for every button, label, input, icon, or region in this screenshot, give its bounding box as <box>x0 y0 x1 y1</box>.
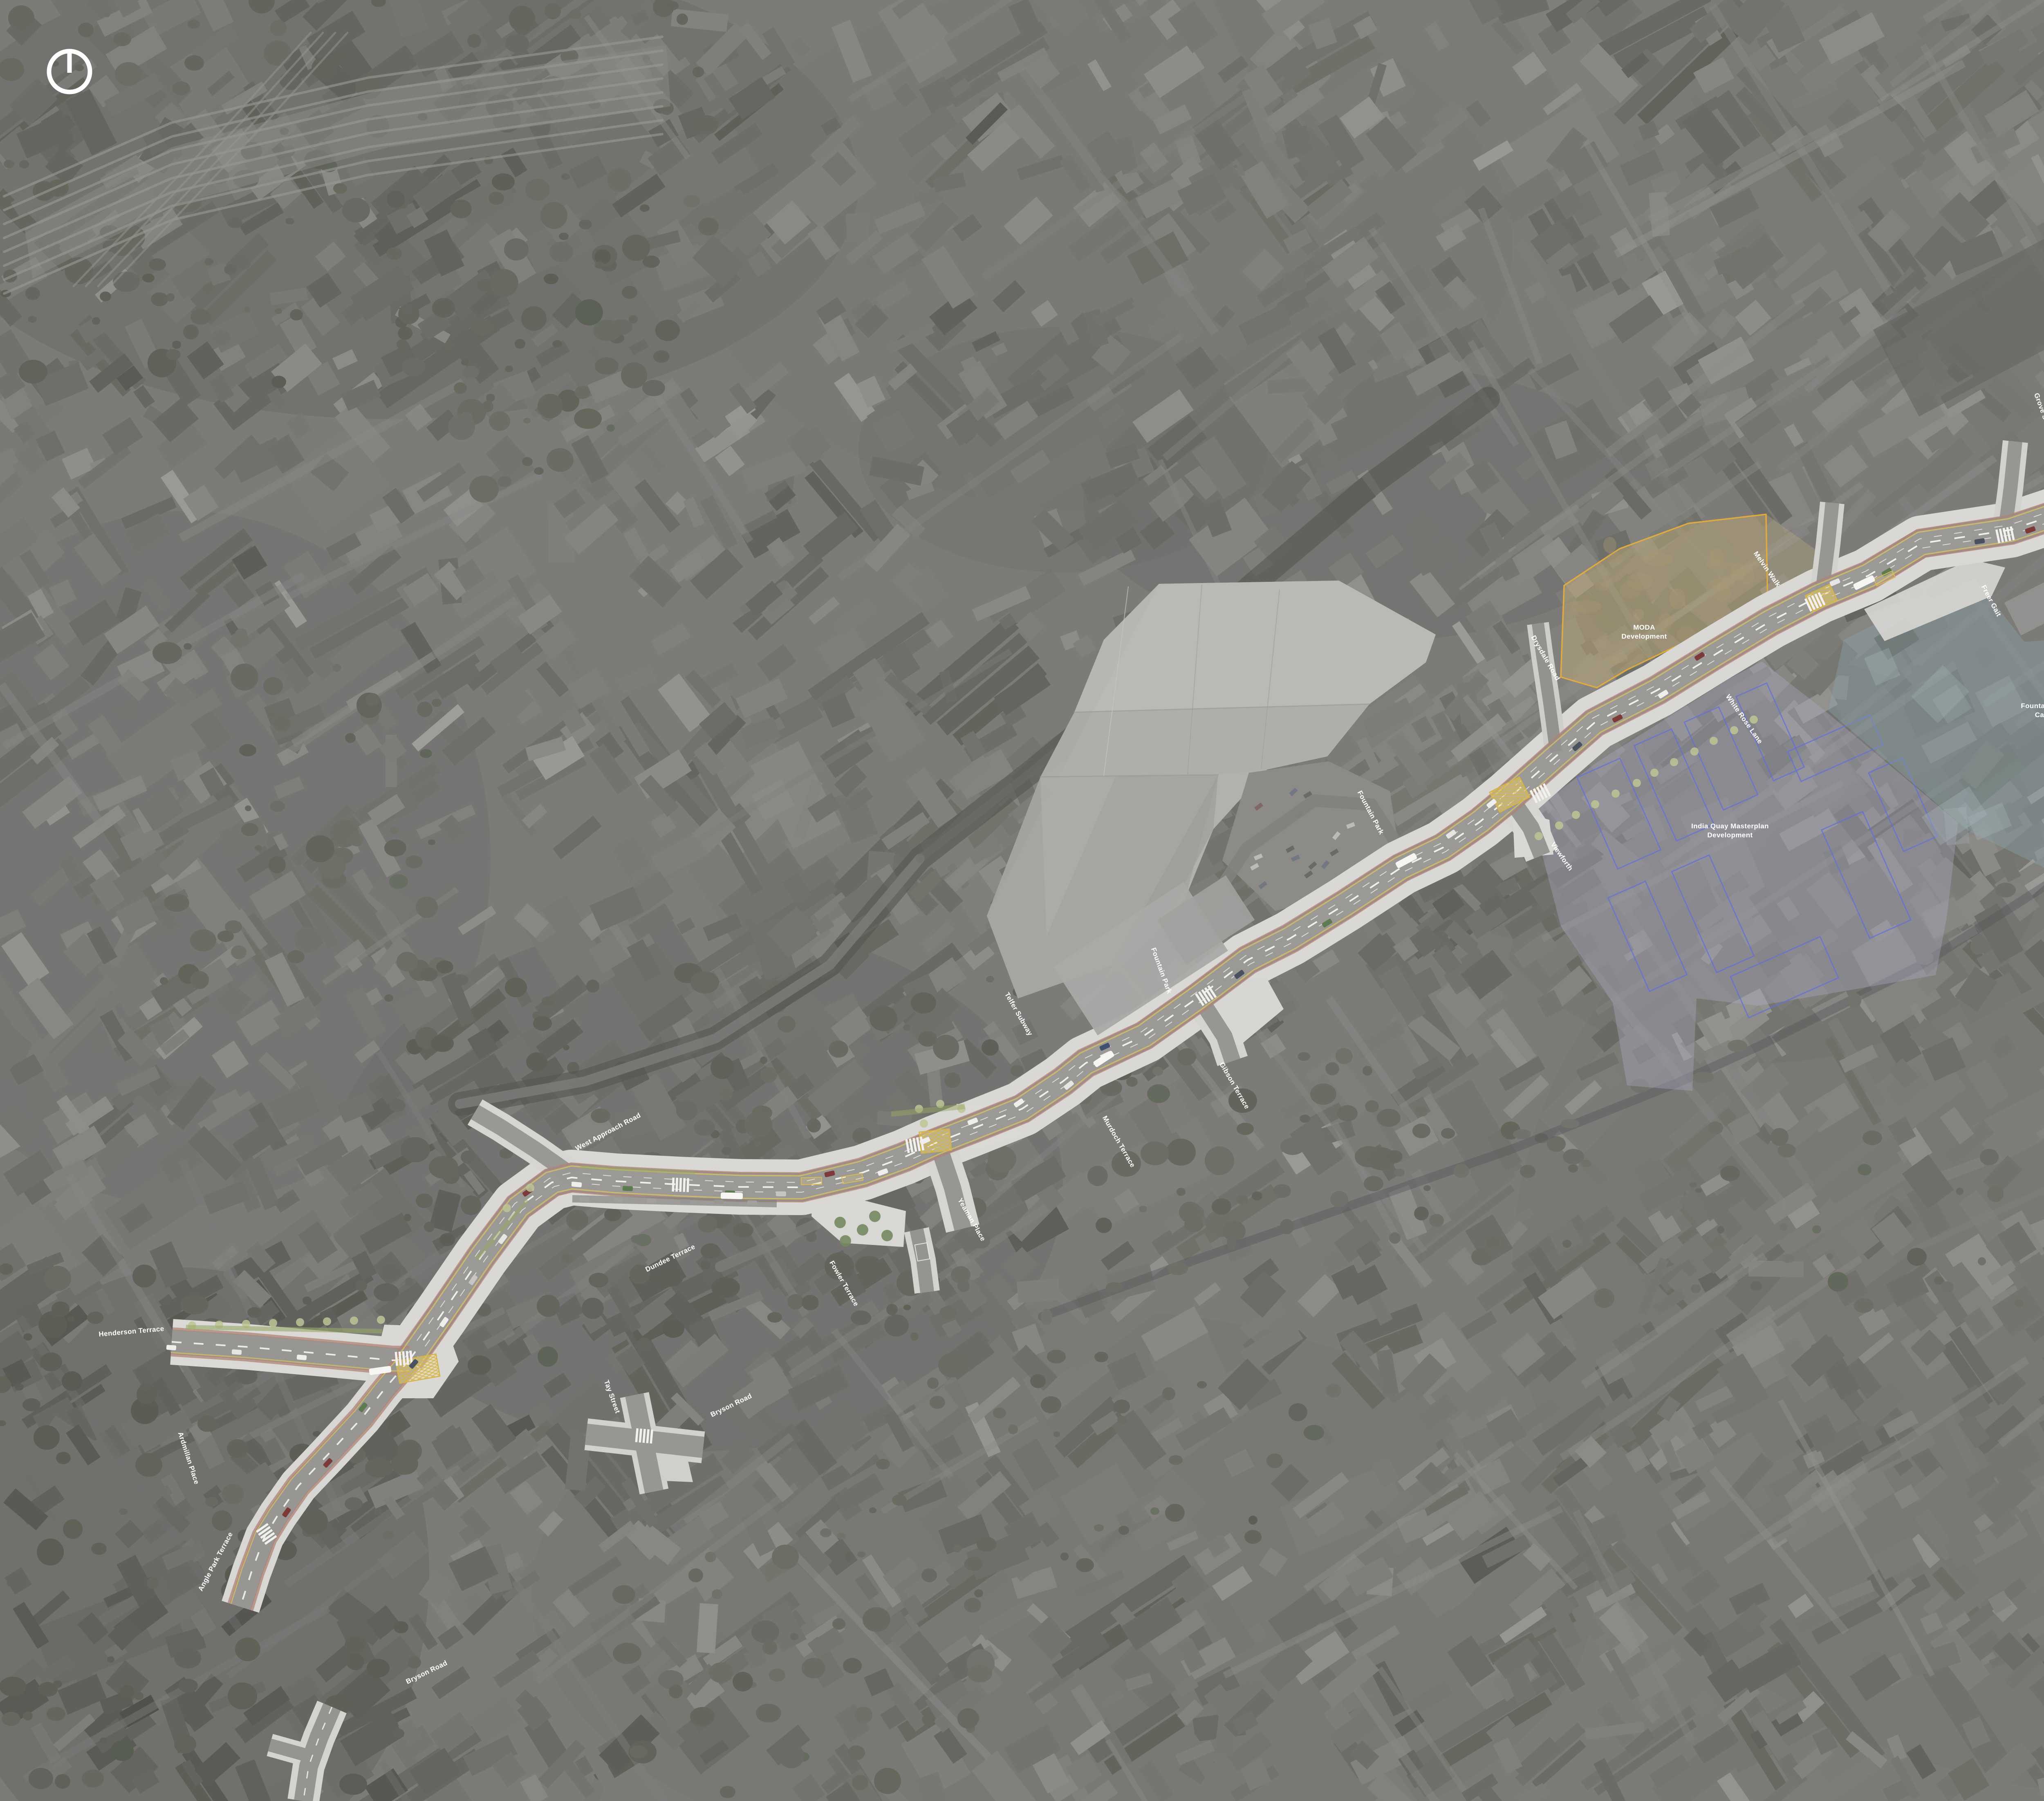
svg-text:Fountainbridge Masterplan/: Fountainbridge Masterplan/ <box>2021 702 2044 710</box>
svg-text:Development: Development <box>1707 831 1753 839</box>
svg-text:Development: Development <box>1621 632 1667 640</box>
svg-text:Canal Development: Canal Development <box>2035 711 2044 719</box>
svg-text:MODA: MODA <box>1633 624 1655 631</box>
svg-text:India Quay Masterplan: India Quay Masterplan <box>1691 822 1769 830</box>
